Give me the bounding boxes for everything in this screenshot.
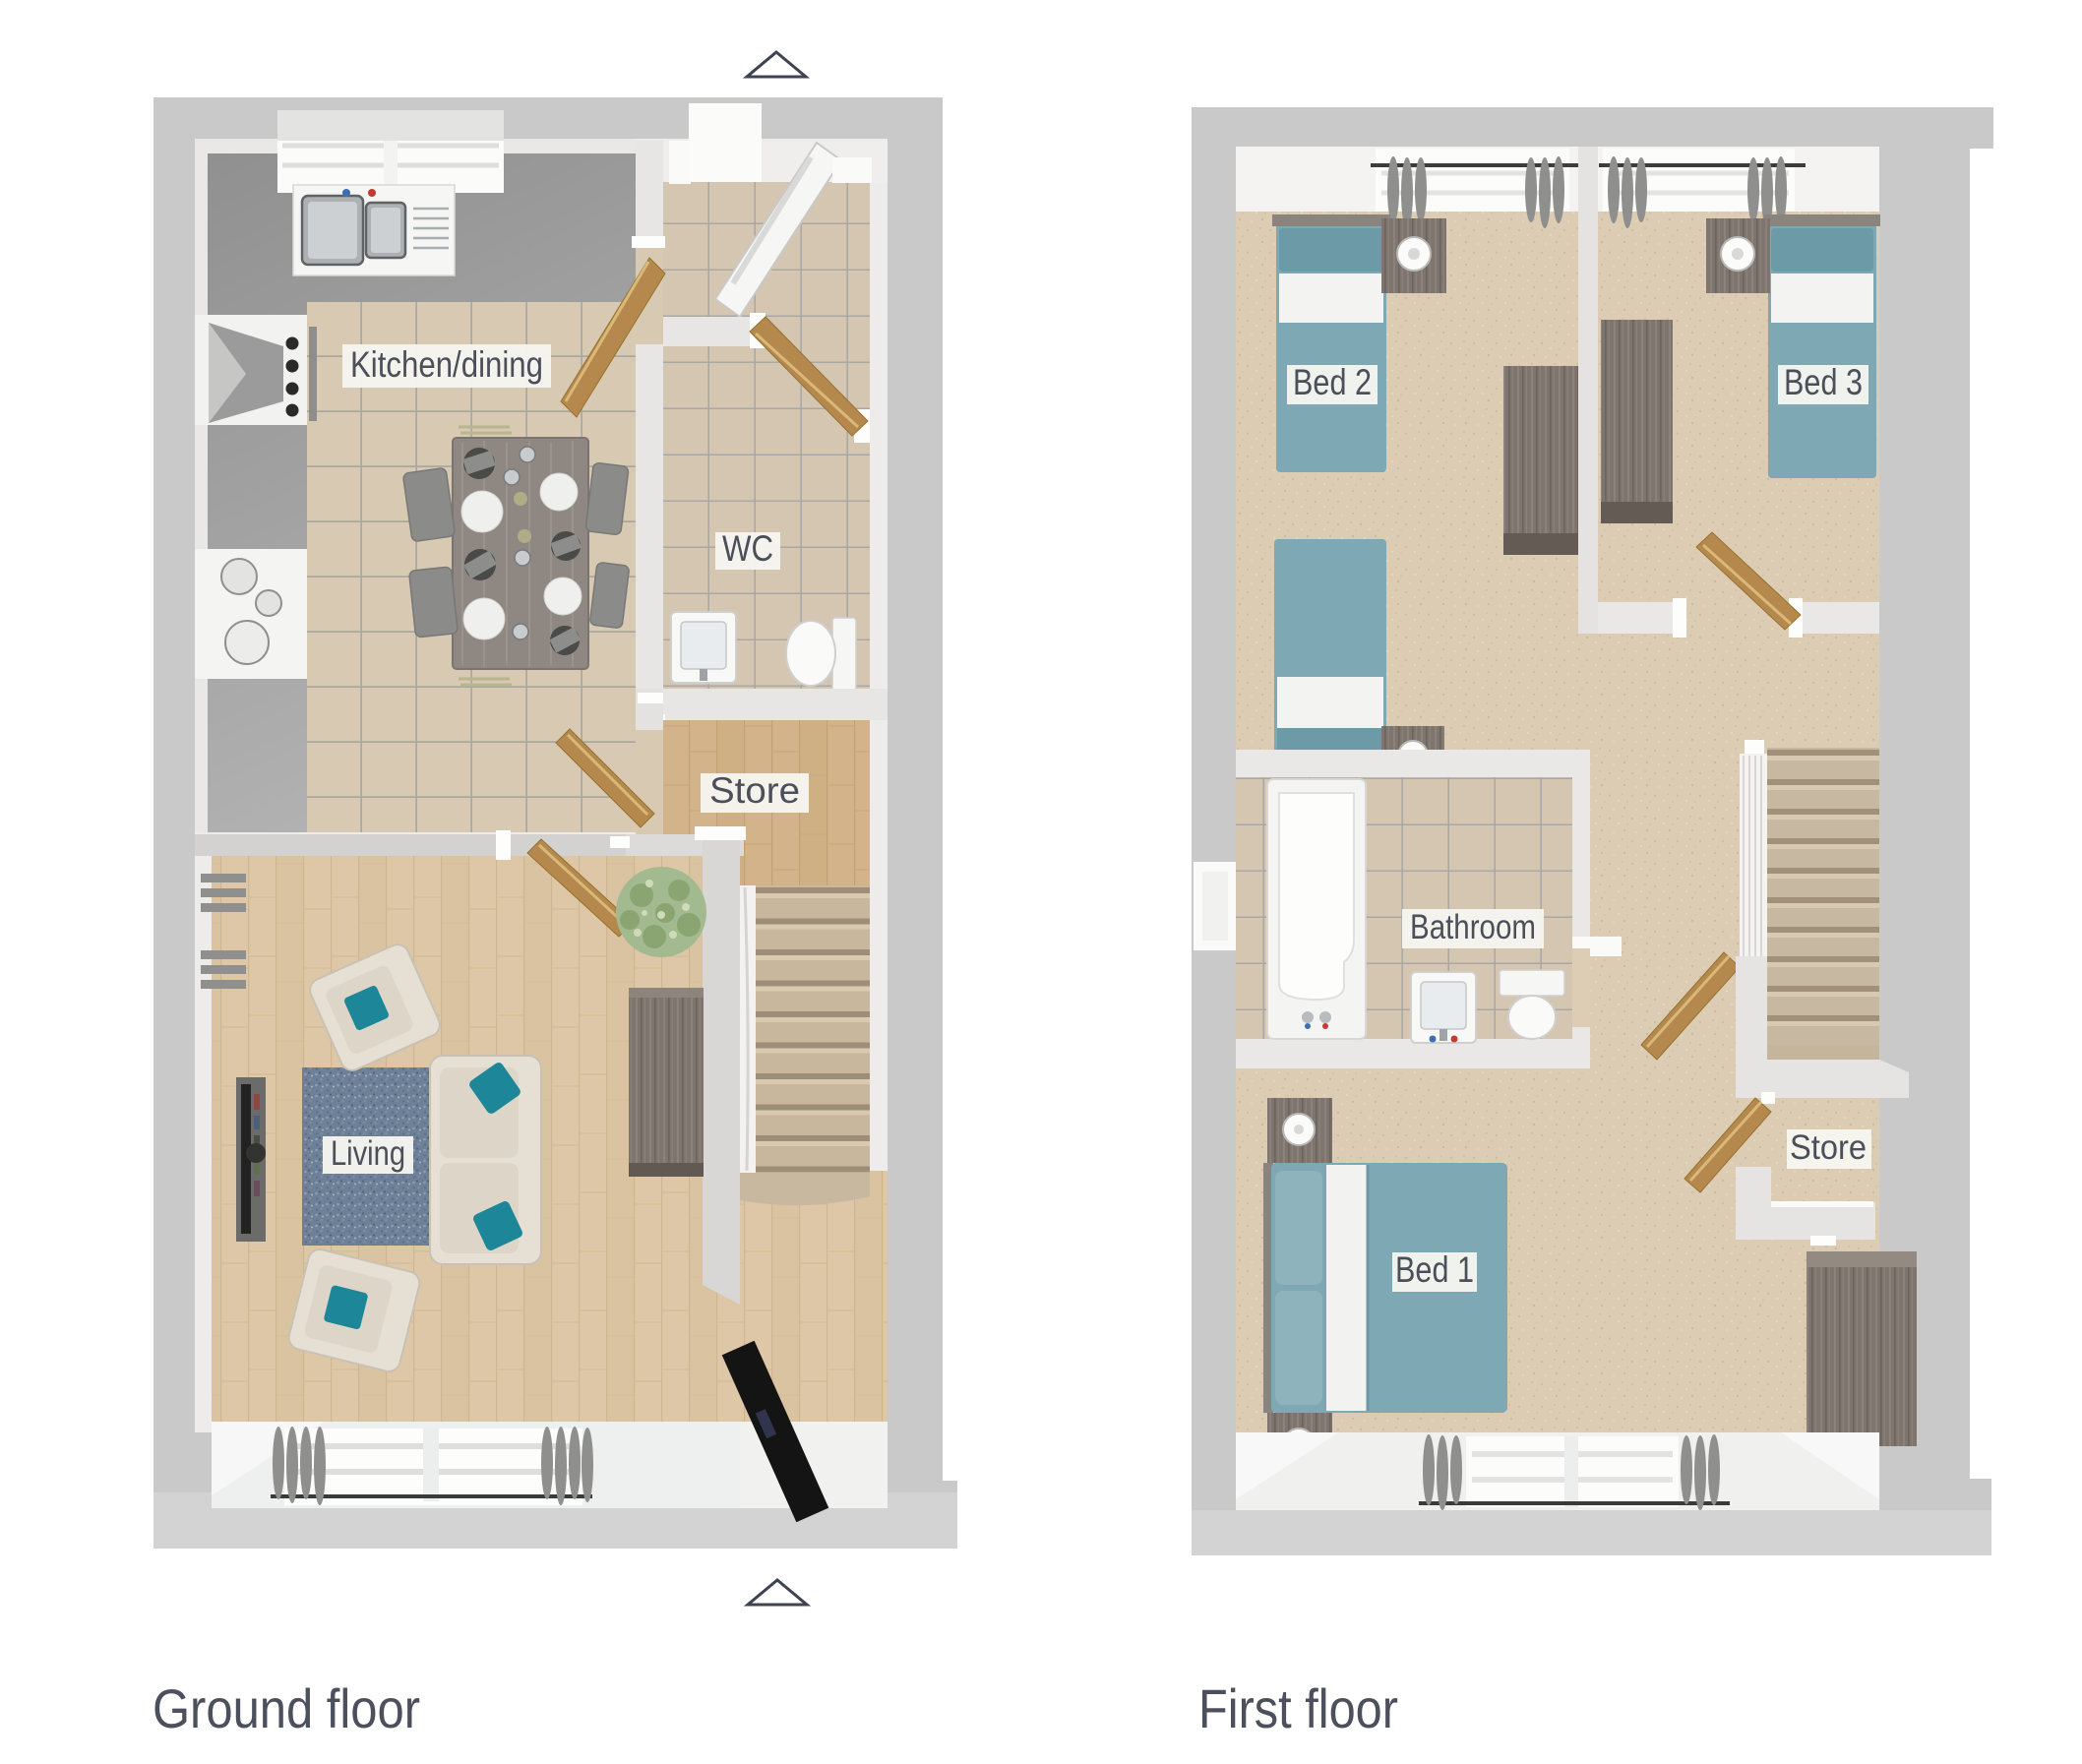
svg-text:WC: WC	[722, 528, 773, 569]
svg-text:Living: Living	[331, 1134, 405, 1173]
svg-text:Bed 3: Bed 3	[1784, 362, 1863, 402]
svg-text:Bathroom: Bathroom	[1410, 908, 1536, 946]
svg-text:Store: Store	[709, 770, 800, 811]
svg-text:Bed 1: Bed 1	[1395, 1249, 1474, 1290]
svg-text:Kitchen/dining: Kitchen/dining	[350, 344, 543, 385]
svg-text:First floor: First floor	[1198, 1677, 1398, 1739]
svg-text:Bed 2: Bed 2	[1293, 362, 1372, 402]
svg-text:Store: Store	[1790, 1128, 1867, 1167]
svg-text:Ground floor: Ground floor	[153, 1677, 420, 1739]
